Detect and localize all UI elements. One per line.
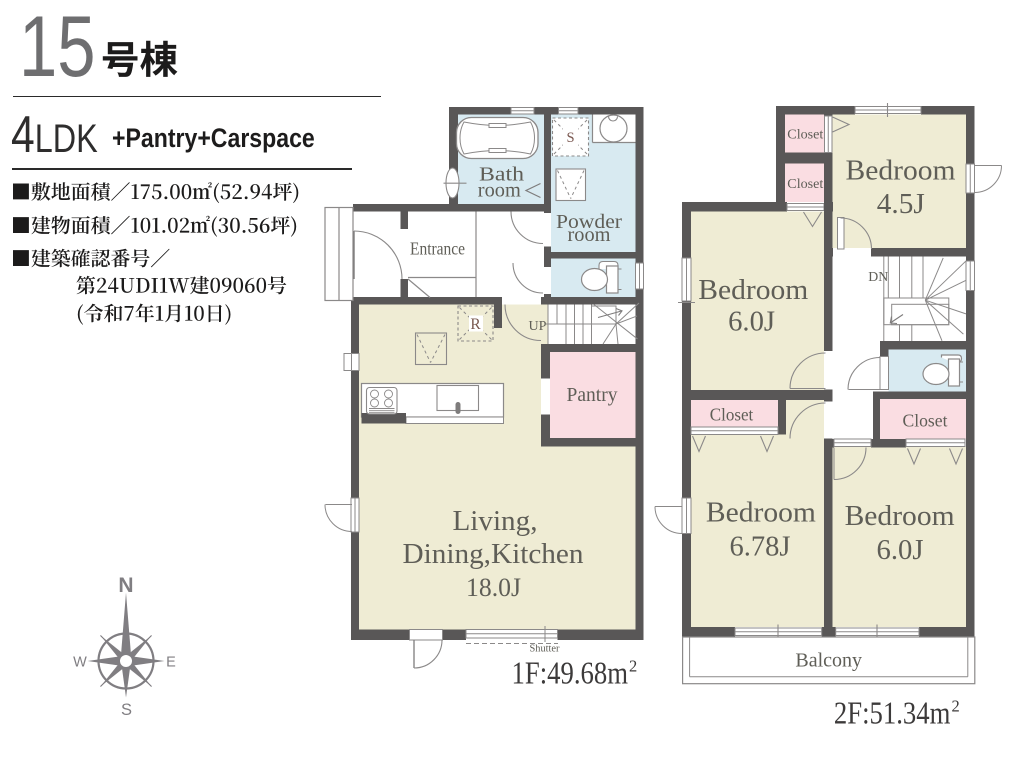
svg-text:Bedroom: Bedroom [706, 497, 816, 529]
svg-text:W: W [73, 655, 87, 671]
svg-text:Balcony: Balcony [795, 649, 862, 671]
svg-text:Entrance: Entrance [410, 239, 465, 259]
svg-text:2: 2 [952, 697, 960, 716]
svg-text:Closet: Closet [903, 410, 948, 430]
svg-text:6.0J: 6.0J [877, 534, 924, 566]
svg-text:S: S [121, 701, 132, 719]
svg-text:E: E [166, 655, 176, 671]
svg-text:Bedroom: Bedroom [846, 155, 956, 187]
svg-text:Dining,Kitchen: Dining,Kitchen [403, 538, 585, 570]
svg-text:1F:49.68m: 1F:49.68m [512, 655, 629, 691]
svg-text:Bedroom: Bedroom [845, 500, 955, 532]
svg-text:Closet: Closet [710, 405, 754, 425]
svg-text:UP: UP [529, 319, 547, 334]
svg-text:DN: DN [868, 270, 888, 285]
svg-text:18.0J: 18.0J [466, 573, 521, 602]
svg-text:4.5J: 4.5J [877, 188, 925, 220]
svg-text:S: S [566, 130, 574, 146]
svg-text:2F:51.34m: 2F:51.34m [834, 695, 951, 731]
svg-text:room: room [568, 224, 611, 246]
svg-text:6.78J: 6.78J [730, 531, 791, 563]
svg-text:Closet: Closet [787, 177, 823, 192]
svg-text:N: N [118, 574, 133, 597]
svg-text:Shutter: Shutter [530, 644, 560, 655]
svg-text:6.0J: 6.0J [728, 306, 775, 338]
svg-text:Pantry: Pantry [567, 384, 619, 406]
svg-text:Bedroom: Bedroom [698, 274, 808, 306]
svg-text:Living,: Living, [453, 505, 538, 537]
svg-text:Closet: Closet [787, 127, 823, 142]
svg-text:2: 2 [629, 657, 637, 676]
svg-text:room: room [478, 180, 521, 202]
svg-text:R: R [470, 316, 481, 333]
